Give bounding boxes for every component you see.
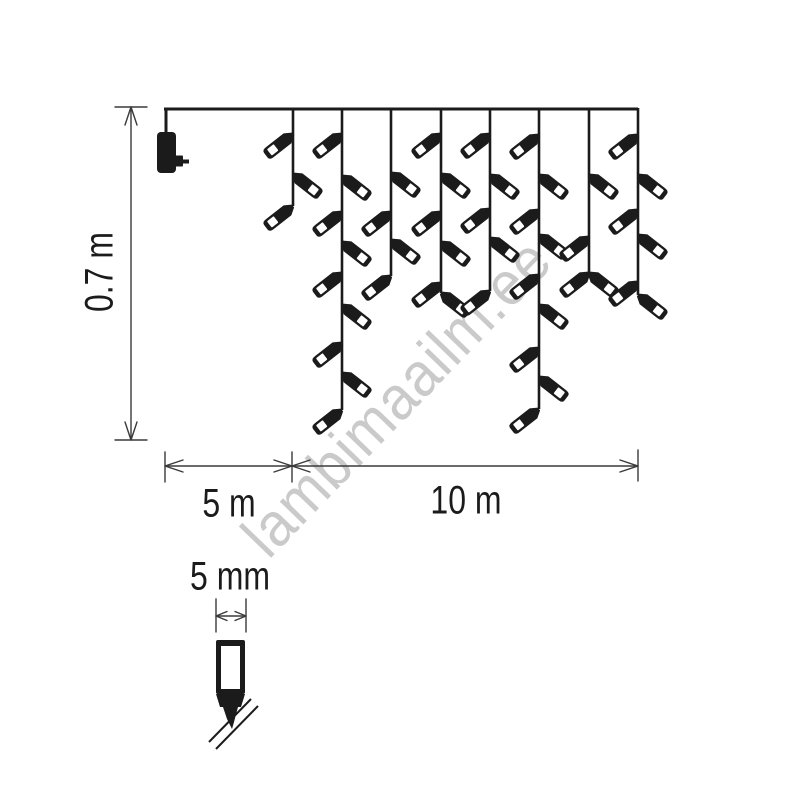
icicle-lights-diagram [0, 0, 800, 800]
height-dimension-label: 0.7 m [78, 232, 123, 312]
led-bulb-icon [262, 129, 297, 160]
led-bulb-icon [338, 171, 373, 202]
led-bulb-icon [634, 230, 669, 261]
led-bulb-icon [338, 300, 373, 331]
led-bulb-icon [360, 271, 395, 302]
led-bulb-icon [634, 290, 669, 321]
led-bulb-icon [585, 170, 620, 201]
led-bulb-icon [338, 237, 373, 268]
led-bulb-icon [338, 368, 373, 399]
led-bulb-icon [360, 207, 395, 238]
led-bulb-icon [508, 404, 543, 435]
led-bulb-icon [437, 237, 472, 268]
icicle-drop [508, 108, 570, 435]
diagram-canvas: lambimaailm.ee [0, 0, 800, 800]
led-bulb-icon [410, 278, 445, 309]
icicle-drop [459, 108, 521, 317]
led-bulb-icon [558, 268, 593, 299]
led-bulb-icon [459, 204, 494, 235]
led-bulb-icon [508, 205, 543, 236]
icicle-drops [262, 108, 669, 436]
led-bulb-icon [289, 169, 324, 200]
power-plug-icon [157, 132, 189, 173]
icicle-drop [558, 108, 620, 299]
led-bulb-icon [437, 169, 472, 200]
icicle-drop [410, 108, 472, 319]
led-bulb-icon [508, 130, 543, 161]
bulb-size-dimension-label: 5 mm [190, 555, 270, 600]
led-bulb-icon [535, 170, 570, 201]
led-bulb-icon [535, 372, 570, 403]
icicle-drop [360, 108, 422, 302]
led-bulb-icon [311, 207, 346, 238]
led-bulb-icon [311, 405, 346, 436]
icicle-drop [262, 108, 324, 232]
led-bulb-icon [311, 268, 346, 299]
led-bulb-icon [607, 205, 642, 236]
led-bulb-icon [486, 233, 521, 264]
led-bulb-icon [262, 201, 297, 232]
icicle-drop [311, 108, 373, 436]
led-bulb-icon [508, 270, 543, 301]
led-bulb-icon [410, 129, 445, 160]
led-bulb-icon [410, 207, 445, 238]
led-bulb-icon [387, 235, 422, 266]
led-bulb-icon [634, 170, 669, 201]
led-bulb-icon [607, 130, 642, 161]
supply-wire [164, 109, 638, 133]
bulb-detail-drawing [209, 640, 258, 749]
lit-length-dimension-label: 10 m [430, 479, 501, 524]
led-bulb-icon [459, 286, 494, 317]
led-bulb-icon [311, 338, 346, 369]
led-bulb-icon [535, 300, 570, 331]
led-bulb-icon [486, 170, 521, 201]
lead-length-dimension-label: 5 m [202, 482, 255, 527]
led-bulb-icon [311, 129, 346, 160]
led-bulb-icon [387, 168, 422, 199]
led-bulb-icon [508, 343, 543, 374]
led-bulb-icon [459, 129, 494, 160]
